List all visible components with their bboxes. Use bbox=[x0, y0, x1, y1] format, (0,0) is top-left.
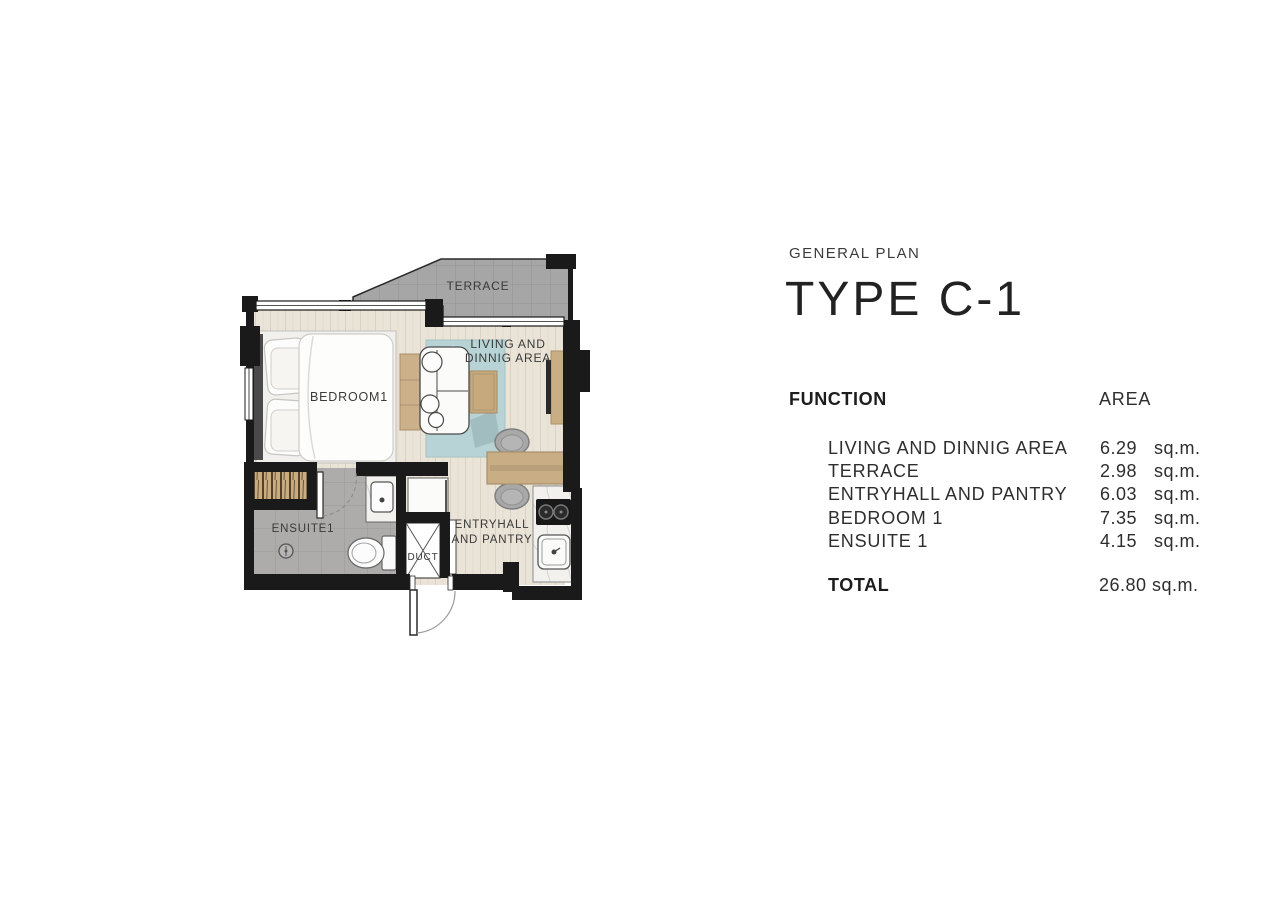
row-unit: sq.m. bbox=[1154, 438, 1201, 459]
label-entry-line1: ENTRYHALL bbox=[455, 519, 530, 531]
row-unit: sq.m. bbox=[1154, 508, 1201, 529]
bathroom-sink bbox=[366, 476, 398, 522]
row-name: ENTRYHALL AND PANTRY bbox=[828, 484, 1067, 505]
kitchen-sink bbox=[538, 535, 570, 569]
page-title: TYPE C-1 bbox=[785, 274, 1025, 327]
toilet bbox=[348, 536, 396, 570]
label-duct: DUCT bbox=[408, 552, 439, 563]
row-value: 6.29 bbox=[1100, 438, 1137, 459]
function-column-header: FUNCTION bbox=[789, 389, 887, 410]
tv bbox=[546, 360, 551, 414]
area-table: LIVING AND DINNIG AREA 6.29 sq.m. TERRAC… bbox=[828, 436, 1248, 552]
row-unit: sq.m. bbox=[1154, 461, 1201, 482]
table-row: LIVING AND DINNIG AREA 6.29 sq.m. bbox=[828, 436, 1248, 459]
total-label: TOTAL bbox=[828, 575, 889, 596]
row-value: 6.03 bbox=[1100, 484, 1137, 505]
label-living-line2: DINNIG AREA bbox=[465, 351, 551, 365]
sideboard bbox=[400, 354, 420, 430]
row-name: TERRACE bbox=[828, 461, 920, 482]
kitchen-counter bbox=[533, 486, 573, 582]
window-bedroom-left bbox=[245, 368, 253, 420]
table-row: TERRACE 2.98 sq.m. bbox=[828, 459, 1248, 482]
area-column-header: AREA bbox=[1099, 389, 1151, 410]
label-bedroom: BEDROOM1 bbox=[310, 390, 388, 404]
floor-drain bbox=[279, 544, 293, 558]
sofa bbox=[420, 347, 469, 434]
table-row: BEDROOM 1 7.35 sq.m. bbox=[828, 506, 1248, 529]
row-name: BEDROOM 1 bbox=[828, 508, 943, 529]
page: TERRACE LIVING AND DINNIG AREA BEDROOM1 … bbox=[0, 0, 1280, 905]
row-value: 2.98 bbox=[1100, 461, 1137, 482]
label-living-line1: LIVING AND bbox=[470, 337, 545, 351]
table-row: ENTRYHALL AND PANTRY 6.03 sq.m. bbox=[828, 482, 1248, 505]
row-unit: sq.m. bbox=[1154, 484, 1201, 505]
coffee-table bbox=[470, 371, 497, 413]
row-name: LIVING AND DINNIG AREA bbox=[828, 438, 1068, 459]
row-name: ENSUITE 1 bbox=[828, 531, 928, 552]
label-entry-line2: AND PANTRY bbox=[451, 534, 532, 546]
label-terrace: TERRACE bbox=[447, 279, 510, 293]
dining-table bbox=[487, 452, 571, 484]
window-living-terrace bbox=[443, 317, 564, 326]
row-value: 7.35 bbox=[1100, 508, 1137, 529]
label-ensuite: ENSUITE1 bbox=[272, 523, 335, 535]
row-unit: sq.m. bbox=[1154, 531, 1201, 552]
total-value: 26.80 sq.m. bbox=[1099, 575, 1199, 596]
duct-shaft bbox=[406, 523, 440, 578]
cooktop bbox=[536, 499, 571, 525]
window-bedroom-top bbox=[256, 301, 426, 310]
row-value: 4.15 bbox=[1100, 531, 1137, 552]
table-row: ENSUITE 1 4.15 sq.m. bbox=[828, 529, 1248, 552]
general-plan-label: GENERAL PLAN bbox=[789, 245, 920, 262]
